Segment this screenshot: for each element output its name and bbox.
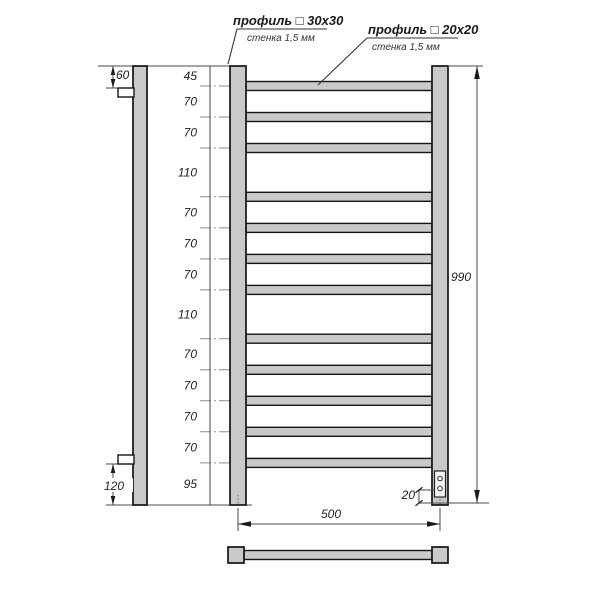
left-chain-dim-label-5: 70 xyxy=(184,236,198,250)
crossbar-11 xyxy=(246,427,432,436)
callout-profile-20: профиль □ 20x20 стенка 1,5 мм xyxy=(318,22,479,85)
dim-500: 500 xyxy=(238,507,440,531)
crossbar-8 xyxy=(246,334,432,343)
crossbar-5 xyxy=(246,223,432,232)
crossbar-4 xyxy=(246,192,432,201)
dim-120-arrow-up xyxy=(111,464,116,473)
left-chain-dim-label-8: 70 xyxy=(184,347,198,361)
dim-60-arrow-up xyxy=(111,66,116,75)
crossbar-12 xyxy=(246,458,432,467)
right-rail xyxy=(432,66,448,505)
callout-30-title: профиль □ 30x30 xyxy=(233,13,344,28)
crossbars xyxy=(246,82,432,468)
dim-60-label: 60 xyxy=(116,68,130,82)
dim-60-arrow-down xyxy=(111,79,116,88)
crossbar-9 xyxy=(246,365,432,374)
left-chain-dim-label-4: 70 xyxy=(184,205,198,219)
crossbar-2 xyxy=(246,113,432,122)
left-chain-dim-label-9: 70 xyxy=(184,378,198,392)
left-chain-dim-label-1: 70 xyxy=(184,95,198,109)
left-chain-dim-label-6: 70 xyxy=(184,267,198,281)
chain-dimension-labels: 4570701107070701107070707095 xyxy=(178,69,197,491)
left-rail xyxy=(230,66,246,505)
side-view-rail xyxy=(133,66,147,505)
control-panel xyxy=(435,471,446,497)
dim-990-arrow-up xyxy=(474,66,480,79)
panel-button-top xyxy=(438,476,443,481)
plan-view-crossbar xyxy=(244,551,432,560)
crossbar-1 xyxy=(246,82,432,91)
drawing-page: 60 120 4570701107070701107070707095 990 xyxy=(0,0,600,600)
dim-990-label: 990 xyxy=(451,270,471,284)
callout-20-subtitle: стенка 1,5 мм xyxy=(372,42,440,53)
left-chain-dim-label-2: 70 xyxy=(184,126,198,140)
dim-500-arrow-right xyxy=(427,521,440,526)
callout-30-subtitle: стенка 1,5 мм xyxy=(247,33,315,44)
dim-120-label: 120 xyxy=(104,479,124,493)
left-chain-dim-label-0: 45 xyxy=(184,69,198,83)
left-chain-dim-label-3: 110 xyxy=(178,165,197,179)
left-chain-dim-label-7: 110 xyxy=(178,307,197,321)
wall-bracket-bottom xyxy=(118,455,134,464)
left-chain-dim-label-10: 70 xyxy=(184,409,198,423)
panel-button-bottom xyxy=(438,486,443,491)
dim-500-arrow-left xyxy=(238,521,251,526)
drawing-canvas: 60 120 4570701107070701107070707095 990 xyxy=(0,0,600,600)
crossbar-3 xyxy=(246,144,432,153)
plan-view xyxy=(228,547,448,563)
left-chain-dim-label-11: 70 xyxy=(184,440,198,454)
left-chain-dim-label-12: 95 xyxy=(184,477,198,491)
callout-20-title: профиль □ 20x20 xyxy=(368,22,479,37)
plan-view-left-post xyxy=(228,547,244,563)
dim-990-arrow-down xyxy=(474,490,480,503)
wall-bracket-top xyxy=(118,88,134,97)
dim-500-label: 500 xyxy=(321,507,341,521)
crossbar-6 xyxy=(246,254,432,263)
callout-profile-30: профиль □ 30x30 стенка 1,5 мм xyxy=(228,13,344,64)
crossbar-7 xyxy=(246,285,432,294)
plan-view-right-post xyxy=(432,547,448,563)
dim-120-arrow-down xyxy=(111,496,116,505)
dim-990: 990 xyxy=(419,66,489,503)
dim-20-label: 20 xyxy=(401,488,416,502)
crossbar-10 xyxy=(246,396,432,405)
front-view xyxy=(230,66,448,505)
